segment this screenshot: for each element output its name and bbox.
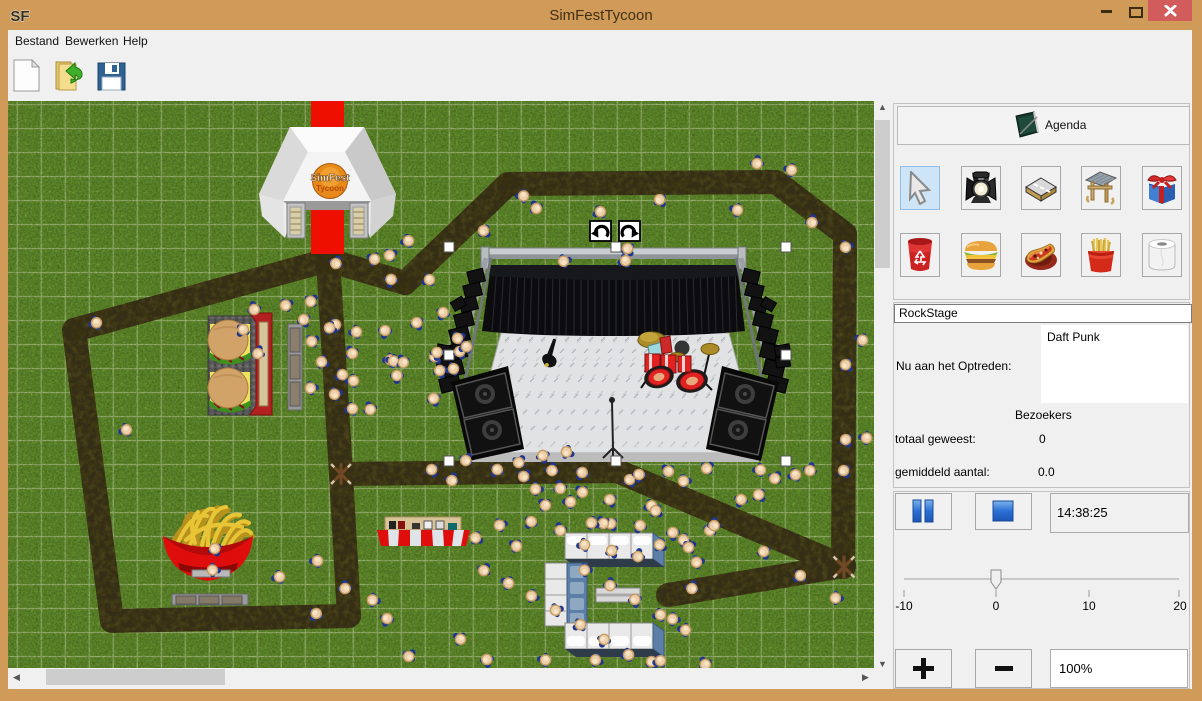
svg-text:10: 10 bbox=[1082, 599, 1096, 613]
svg-text:Tycoon: Tycoon bbox=[316, 184, 344, 193]
svg-text:0: 0 bbox=[993, 599, 1000, 613]
svg-text:SF: SF bbox=[10, 8, 29, 25]
svg-text:SimFest: SimFest bbox=[311, 173, 351, 184]
svg-text:20: 20 bbox=[1173, 599, 1187, 613]
svg-text:-10: -10 bbox=[895, 599, 913, 613]
